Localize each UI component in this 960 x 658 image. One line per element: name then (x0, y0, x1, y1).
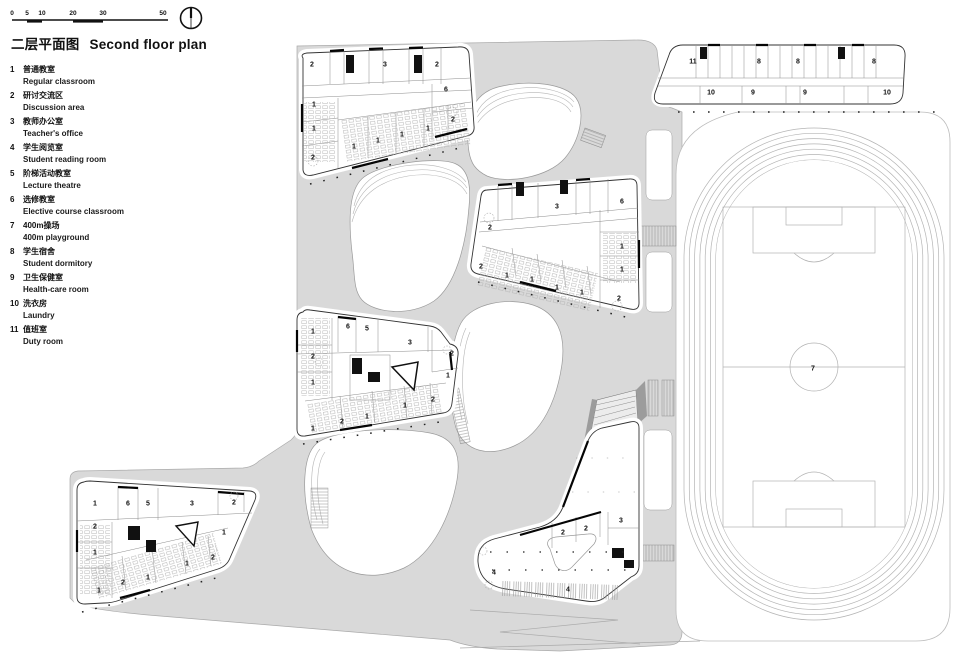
room-label: 1 (146, 575, 150, 582)
room-label: 10 (707, 90, 715, 97)
room-label: 5 (146, 501, 150, 508)
room-label: 1 (222, 530, 226, 537)
room-label: 2 (561, 530, 565, 537)
room-label: 1 (426, 126, 430, 133)
room-label: 2 (450, 351, 454, 358)
room-label: 6 (346, 324, 350, 331)
track-infield (716, 160, 912, 588)
room-label: 10 (883, 90, 891, 97)
room-label: 1 (352, 144, 356, 151)
room-label: 1 (311, 426, 315, 433)
room-label: 2 (435, 62, 439, 69)
room-label: 11 (689, 59, 697, 66)
room-label: 2 (431, 397, 435, 404)
room-label: 1 (620, 244, 624, 251)
room-label: 1 (505, 273, 509, 280)
room-label: 2 (584, 526, 588, 533)
room-label: 6 (444, 87, 448, 94)
room-label: 2 (310, 62, 314, 69)
room-label: 2 (340, 419, 344, 426)
room-label: 1 (365, 414, 369, 421)
room-label: 7 (811, 366, 815, 373)
room-label: 9 (803, 90, 807, 97)
room-label: 1 (620, 267, 624, 274)
room-label: 1 (555, 285, 559, 292)
room-label: 1 (312, 102, 316, 109)
room-label: 5 (365, 326, 369, 333)
room-label: 1 (97, 588, 101, 595)
room-label: 2 (211, 555, 215, 562)
room-label: 6 (126, 501, 130, 508)
room-label: 2 (311, 354, 315, 361)
building-dormitory (654, 45, 946, 112)
room-label: 1 (530, 277, 534, 284)
room-label: 3 (555, 204, 559, 211)
room-label: 1 (376, 138, 380, 145)
room-label: 3 (190, 501, 194, 508)
room-label: 2 (451, 117, 455, 124)
room-label: 8 (872, 59, 876, 66)
room-label: 4 (492, 570, 496, 577)
room-label: 2 (479, 264, 483, 271)
room-label: 1 (93, 501, 97, 508)
room-label: 1 (400, 132, 404, 139)
room-label: 2 (488, 225, 492, 232)
room-label: 1 (446, 373, 450, 380)
room-label: 2 (121, 580, 125, 587)
room-label: 3 (408, 340, 412, 347)
room-label: 1 (93, 550, 97, 557)
room-label: 1 (403, 403, 407, 410)
room-label: 2 (93, 524, 97, 531)
floor-plan-sheet: 0510203050 二层平面图Second floor plan 1普通教室R… (0, 0, 960, 658)
room-label: 8 (796, 59, 800, 66)
room-label: 1 (311, 380, 315, 387)
room-label: 1 (580, 290, 584, 297)
room-label: 1 (311, 329, 315, 336)
room-label: 2 (311, 155, 315, 162)
room-label: 6 (620, 199, 624, 206)
plan-drawing: 2326121111121188810991036211211112165322… (0, 0, 960, 658)
room-label: 4 (566, 587, 570, 594)
room-label: 2 (617, 296, 621, 303)
room-label: 1 (312, 126, 316, 133)
room-label: 2 (232, 500, 236, 507)
room-label: 9 (751, 90, 755, 97)
room-label: 1 (185, 561, 189, 568)
room-label: 3 (619, 518, 623, 525)
room-label: 8 (757, 59, 761, 66)
room-label: 3 (383, 62, 387, 69)
